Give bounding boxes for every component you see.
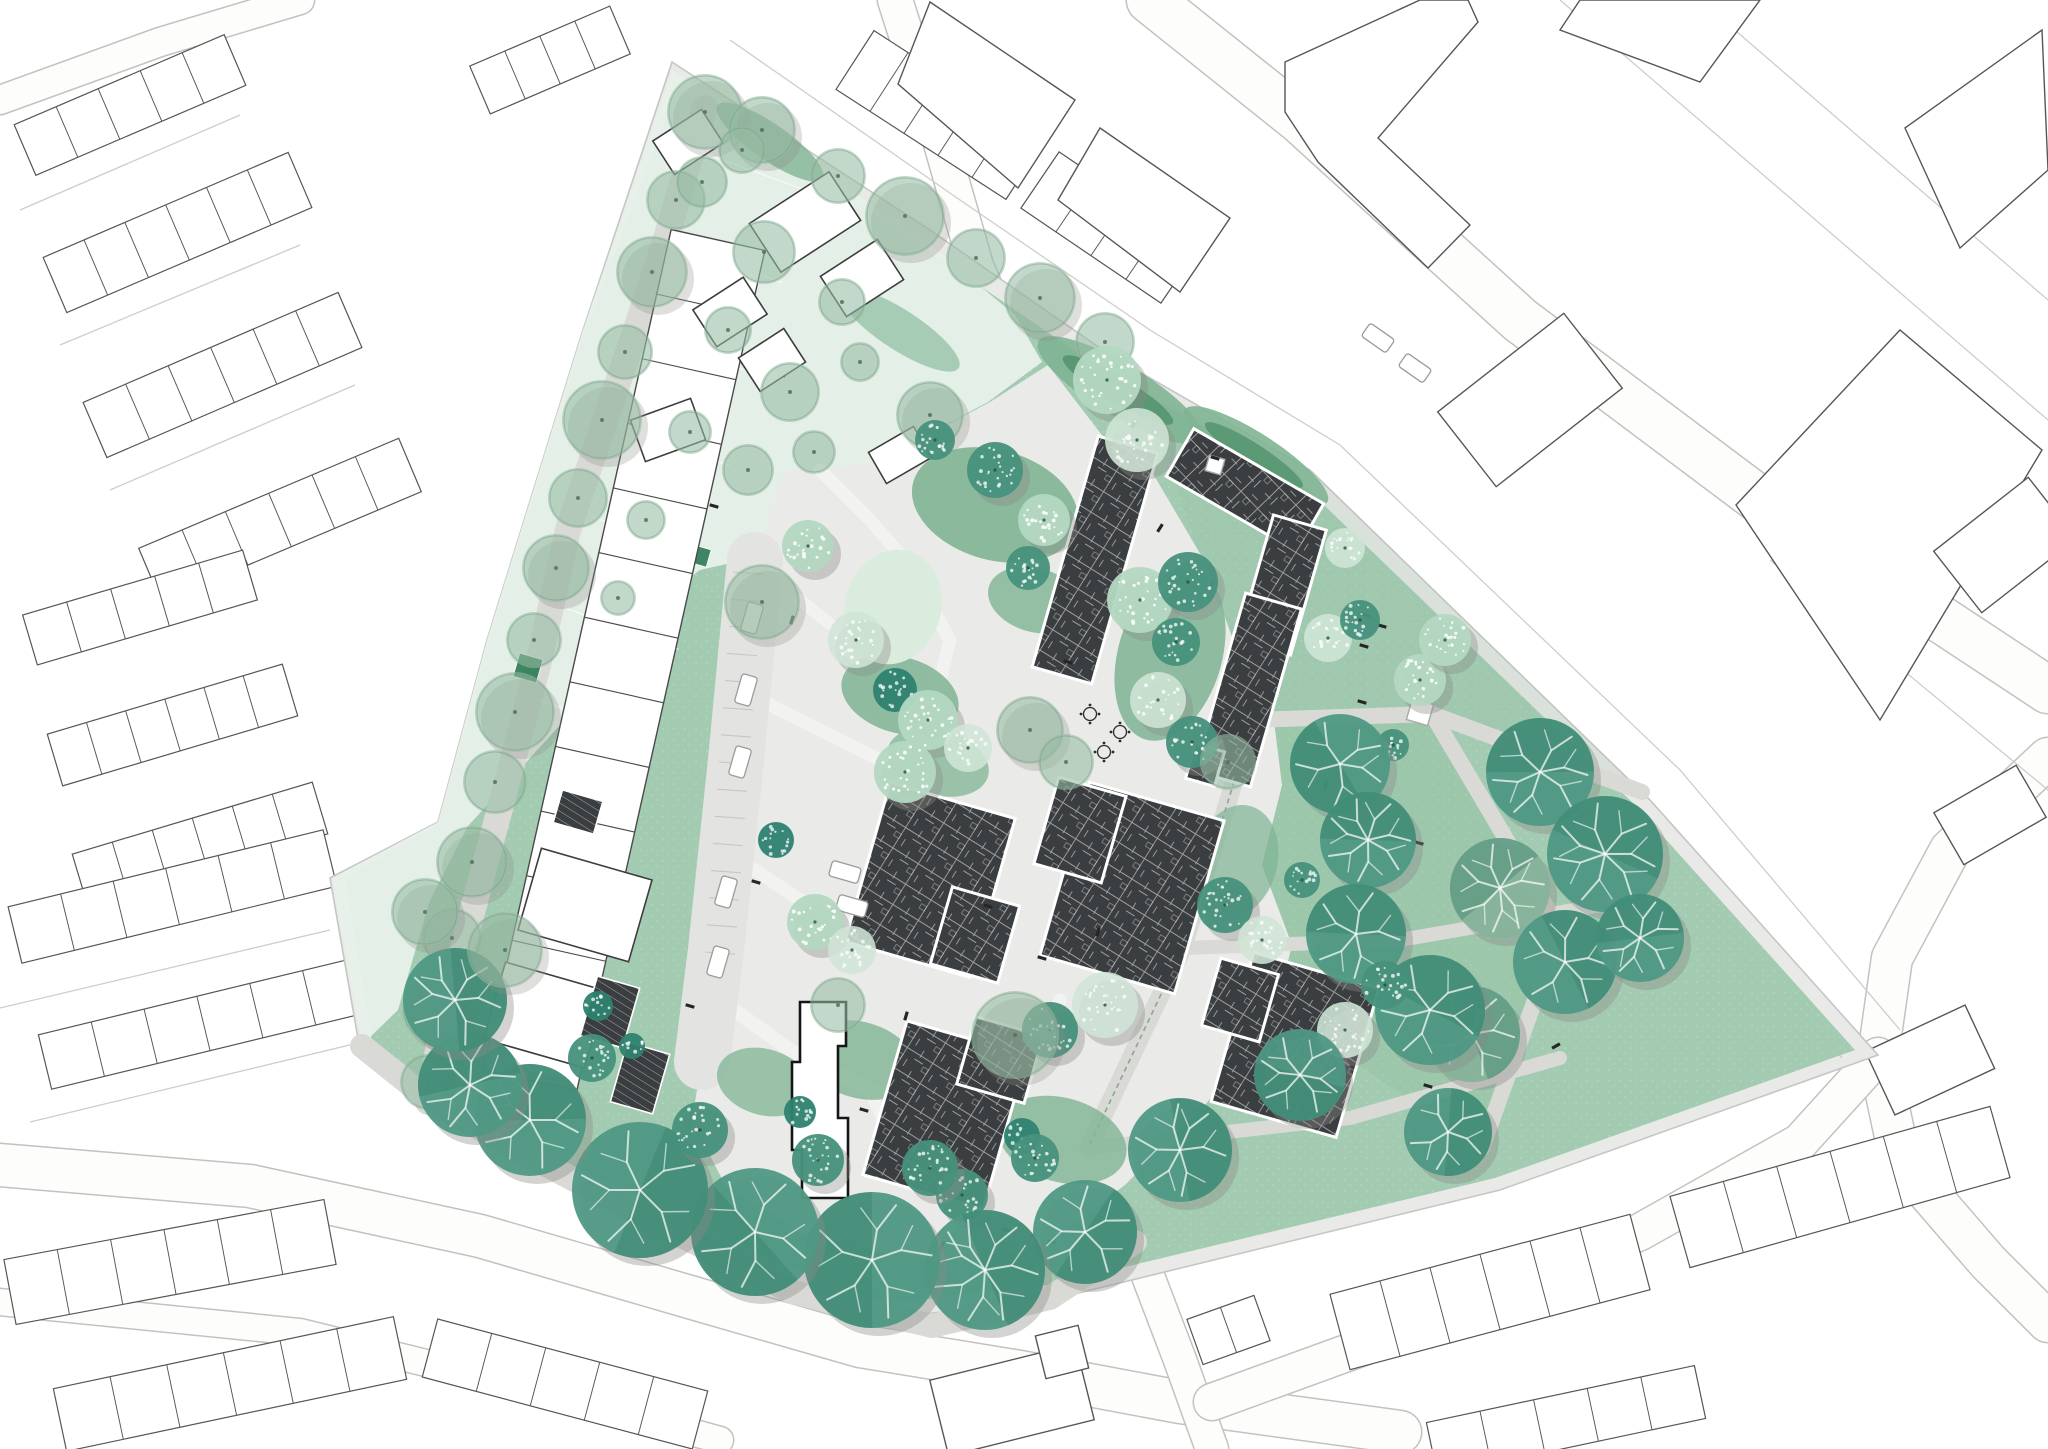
stipple-dot <box>801 532 804 535</box>
stipple-dot <box>914 1168 917 1171</box>
stipple-dot <box>1119 610 1121 612</box>
stipple-dot <box>1024 567 1026 569</box>
stipple-dot <box>1181 640 1185 644</box>
stipple-dot <box>889 704 891 706</box>
stipple-dot <box>812 1143 814 1145</box>
stipple-dot <box>1377 968 1380 971</box>
stipple-dot <box>762 839 764 841</box>
stipple-dot <box>823 939 826 942</box>
stipple-dot <box>810 544 814 548</box>
stipple-dot <box>1103 994 1106 997</box>
stipple-dot <box>912 736 914 738</box>
stipple-dot <box>1170 714 1173 717</box>
trunk-dot <box>816 1158 819 1161</box>
trunk-dot <box>740 148 744 152</box>
stipple-dot <box>1127 610 1129 612</box>
stipple-dot <box>1009 1126 1013 1130</box>
stipple-dot <box>980 455 983 458</box>
stipple-dot <box>1193 564 1196 567</box>
stipple-dot <box>1141 597 1145 601</box>
tree-stipDark <box>1011 1134 1059 1182</box>
stipple-dot <box>1351 621 1353 623</box>
stipple-dot <box>1116 450 1119 453</box>
tree-lace <box>1325 528 1365 568</box>
stipple-dot <box>850 655 854 659</box>
stipple-dot <box>769 825 773 829</box>
stipple-dot <box>1397 982 1400 985</box>
stipple-dot <box>1085 993 1087 995</box>
stipple-dot <box>909 745 912 748</box>
stipple-dot <box>1137 710 1140 713</box>
stipple-dot <box>1447 636 1450 639</box>
tree-sage <box>792 430 836 474</box>
stipple-dot <box>921 434 923 436</box>
stipple-dot <box>1289 885 1291 887</box>
trunk-dot <box>1343 1028 1346 1031</box>
branch <box>1501 755 1523 756</box>
stipple-dot <box>789 556 792 559</box>
stipple-dot <box>592 1009 595 1012</box>
stipple-dot <box>1412 674 1414 676</box>
stipple-dot <box>1127 364 1131 368</box>
stipple-dot <box>918 749 921 752</box>
trunk-dot <box>788 390 792 394</box>
stipple-dot <box>917 763 919 765</box>
stipple-dot <box>906 769 910 773</box>
stipple-dot <box>966 759 969 762</box>
stipple-dot <box>1018 557 1020 559</box>
picnic-seat <box>1098 713 1101 716</box>
stipple-dot <box>717 1124 720 1127</box>
stipple-dot <box>1096 1006 1099 1009</box>
tree-sage <box>676 156 728 208</box>
stipple-dot <box>1221 885 1224 888</box>
stipple-dot <box>1165 608 1167 610</box>
stipple-dot <box>1263 943 1267 947</box>
stipple-dot <box>1381 988 1384 991</box>
stipple-dot <box>1008 1133 1011 1136</box>
stipple-dot <box>1326 628 1328 630</box>
stipple-dot <box>903 785 906 788</box>
stipple-dot <box>900 688 902 690</box>
stipple-dot <box>1154 431 1157 434</box>
stipple-dot <box>787 554 789 556</box>
stipple-dot <box>1054 514 1058 518</box>
trunk-dot <box>532 638 536 642</box>
stipple-dot <box>1345 616 1348 619</box>
stipple-dot <box>944 1168 948 1172</box>
stipple-dot <box>910 720 913 723</box>
stipple-dot <box>1115 996 1117 998</box>
stipple-dot <box>1110 408 1112 410</box>
tree-lace <box>944 724 992 772</box>
stipple-dot <box>1162 625 1165 628</box>
trunk-dot <box>1383 983 1386 986</box>
tree-sage <box>1038 734 1094 790</box>
stipple-dot <box>1048 527 1051 530</box>
stipple-dot <box>602 1046 604 1048</box>
stipple-dot <box>824 1139 826 1141</box>
stipple-dot <box>821 925 824 928</box>
stipple-dot <box>1093 1028 1095 1030</box>
stipple-dot <box>811 1138 813 1140</box>
stipple-dot <box>1124 380 1128 384</box>
stipple-dot <box>998 462 1000 464</box>
stipple-dot <box>1173 584 1177 588</box>
trunk-dot <box>700 180 704 184</box>
stipple-dot <box>1201 571 1203 573</box>
tree-sage <box>818 278 866 326</box>
stipple-dot <box>1332 645 1336 649</box>
stipple-dot <box>896 752 899 755</box>
stipple-dot <box>626 1042 630 1046</box>
stipple-dot <box>802 1145 806 1149</box>
stipple-dot <box>1463 643 1465 645</box>
stipple-dot <box>858 955 861 958</box>
stipple-dot <box>702 1119 705 1122</box>
stipple-dot <box>1389 984 1392 987</box>
stipple-dot <box>964 738 966 740</box>
context-building <box>1905 30 2048 248</box>
stipple-dot <box>969 739 973 743</box>
tree-bush <box>583 991 613 1021</box>
stipple-dot <box>888 685 892 689</box>
stipple-dot <box>808 1179 811 1182</box>
picnic-seat <box>1128 731 1131 734</box>
trunk-dot <box>812 450 816 454</box>
stipple-dot <box>1413 679 1417 683</box>
stipple-dot <box>851 620 855 624</box>
stipple-dot <box>781 853 783 855</box>
stipple-dot <box>640 1048 642 1050</box>
stipple-dot <box>864 620 866 622</box>
trunk-dot <box>688 430 692 434</box>
stipple-dot <box>1297 869 1300 872</box>
trunk-dot <box>806 544 809 547</box>
stipple-dot <box>814 1177 816 1179</box>
trunk-dot <box>1358 618 1361 621</box>
stipple-dot <box>597 1064 599 1066</box>
stipple-dot <box>1131 611 1135 615</box>
stipple-dot <box>1146 620 1149 623</box>
stipple-dot <box>973 1208 975 1210</box>
stipple-dot <box>1162 690 1166 694</box>
stipple-dot <box>1429 667 1433 671</box>
stipple-dot <box>842 966 844 968</box>
stipple-dot <box>1444 651 1446 653</box>
stipple-dot <box>910 726 912 728</box>
stipple-dot <box>963 1187 965 1189</box>
stipple-dot <box>1023 514 1025 516</box>
trunk-dot <box>858 360 862 364</box>
stipple-dot <box>1144 683 1148 687</box>
stipple-dot <box>1138 696 1141 699</box>
trunk-dot <box>1223 903 1226 906</box>
stipple-dot <box>1203 743 1205 745</box>
stipple-dot <box>1360 1037 1364 1041</box>
stipple-dot <box>1177 587 1180 590</box>
stipple-dot <box>1312 626 1315 629</box>
stipple-dot <box>1092 354 1095 357</box>
stipple-dot <box>943 443 945 445</box>
stipple-dot <box>1010 482 1013 485</box>
stipple-dot <box>693 1145 696 1148</box>
stipple-dot <box>972 1197 976 1201</box>
stipple-dot <box>1329 640 1331 642</box>
stipple-dot <box>1012 455 1014 457</box>
stipple-dot <box>809 1174 813 1178</box>
stipple-dot <box>1405 688 1408 691</box>
stipple-dot <box>1267 948 1269 950</box>
stipple-dot <box>679 1118 682 1121</box>
stipple-dot <box>1418 666 1421 669</box>
stipple-dot <box>907 789 909 791</box>
stipple-dot <box>1133 584 1136 587</box>
stipple-dot <box>827 551 830 554</box>
stipple-dot <box>1052 1159 1055 1162</box>
stipple-dot <box>583 1060 585 1062</box>
stipple-dot <box>928 425 931 428</box>
stipple-dot <box>919 726 922 729</box>
trunk-dot <box>503 948 507 952</box>
stipple-dot <box>1066 1044 1069 1047</box>
stipple-dot <box>1352 1009 1354 1011</box>
stipple-dot <box>1361 613 1363 615</box>
stipple-dot <box>1334 1027 1338 1031</box>
stipple-dot <box>641 1041 643 1043</box>
stipple-dot <box>1116 455 1120 459</box>
stipple-dot <box>787 838 789 840</box>
trunk-dot <box>470 860 474 864</box>
stipple-dot <box>1146 612 1149 615</box>
stipple-dot <box>1316 622 1318 624</box>
stipple-dot <box>1175 637 1178 640</box>
stipple-dot <box>808 566 811 569</box>
stipple-dot <box>1335 627 1339 631</box>
stipple-dot <box>1184 726 1186 728</box>
stipple-dot <box>928 1157 931 1160</box>
stipple-dot <box>1188 631 1192 635</box>
stipple-dot <box>1068 1039 1072 1043</box>
stipple-dot <box>827 1163 830 1166</box>
stipple-dot <box>1166 569 1168 571</box>
stipple-dot <box>809 1116 811 1118</box>
stipple-dot <box>1053 511 1055 513</box>
stipple-dot <box>1397 973 1400 976</box>
stipple-dot <box>1093 988 1095 990</box>
trunk-dot <box>698 1128 701 1131</box>
stipple-dot <box>861 940 865 944</box>
trunk-dot <box>423 910 427 914</box>
stipple-dot <box>708 1132 711 1135</box>
stipple-dot <box>1451 621 1453 623</box>
stipple-dot <box>608 1006 611 1009</box>
stipple-dot <box>607 1056 610 1059</box>
stipple-dot <box>1417 693 1419 695</box>
stipple-dot <box>969 1180 972 1183</box>
stipple-dot <box>854 953 858 957</box>
stipple-dot <box>1137 582 1140 585</box>
stipple-dot <box>702 1106 705 1109</box>
stipple-dot <box>1248 932 1251 935</box>
stipple-dot <box>1203 910 1206 913</box>
stipple-dot <box>1119 1009 1121 1011</box>
stipple-dot <box>1438 639 1440 641</box>
stipple-dot <box>888 756 891 759</box>
stipple-dot <box>1410 659 1413 662</box>
stipple-dot <box>1264 931 1267 934</box>
stipple-dot <box>903 751 907 755</box>
stipple-dot <box>588 1066 592 1070</box>
stipple-dot <box>1122 581 1125 584</box>
stipple-dot <box>1154 598 1156 600</box>
stipple-dot <box>1120 459 1124 463</box>
trunk-dot <box>903 770 906 773</box>
stipple-dot <box>893 673 896 676</box>
stipple-dot <box>641 1043 644 1046</box>
stipple-dot <box>1206 897 1209 900</box>
stipple-dot <box>795 1106 798 1109</box>
trunk-dot <box>836 174 840 178</box>
stipple-dot <box>1113 1007 1115 1009</box>
stipple-dot <box>840 953 843 956</box>
stipple-dot <box>944 734 947 737</box>
stipple-dot <box>955 734 958 737</box>
stipple-dot <box>882 689 884 691</box>
stipple-dot <box>1361 625 1365 629</box>
stipple-dot <box>907 711 909 713</box>
tree-sage <box>946 228 1006 288</box>
stipple-dot <box>834 636 837 639</box>
stipple-dot <box>811 539 813 541</box>
stipple-dot <box>1333 538 1335 540</box>
stipple-dot <box>603 1012 606 1015</box>
stipple-dot <box>1348 537 1350 539</box>
stipple-dot <box>1191 744 1193 746</box>
stipple-dot <box>1399 739 1403 743</box>
stipple-dot <box>983 481 987 485</box>
stipple-dot <box>1268 931 1270 933</box>
stipple-dot <box>1367 606 1369 608</box>
stipple-dot <box>1330 542 1334 546</box>
stipple-dot <box>602 1059 605 1062</box>
stipple-dot <box>899 756 902 759</box>
stipple-dot <box>827 1155 829 1157</box>
stipple-dot <box>1377 984 1381 988</box>
stipple-dot <box>1355 1014 1358 1017</box>
stipple-dot <box>1110 979 1114 983</box>
stipple-dot <box>1031 567 1033 569</box>
stipple-dot <box>627 1046 630 1049</box>
stipple-dot <box>967 762 971 766</box>
stipple-dot <box>1212 892 1215 895</box>
stipple-dot <box>583 1054 587 1058</box>
stipple-dot <box>1462 650 1464 652</box>
stipple-dot <box>988 447 990 449</box>
stipple-dot <box>1219 915 1221 917</box>
stipple-dot <box>816 556 819 559</box>
trunk-dot <box>623 350 627 354</box>
stipple-dot <box>681 1139 684 1142</box>
stipple-dot <box>895 681 899 685</box>
stipple-dot <box>1100 392 1103 395</box>
stipple-dot <box>1010 569 1013 572</box>
stipple-dot <box>1128 423 1130 425</box>
stipple-dot <box>601 1004 603 1006</box>
stipple-dot <box>922 778 925 781</box>
stipple-dot <box>1122 400 1126 404</box>
stipple-dot <box>1344 626 1348 630</box>
tree-sage <box>718 126 766 174</box>
stipple-dot <box>1093 990 1095 992</box>
stipple-dot <box>1024 579 1027 582</box>
stipple-dot <box>902 676 905 679</box>
stipple-dot <box>925 785 928 788</box>
stipple-dot <box>769 837 771 839</box>
stipple-dot <box>920 1179 922 1181</box>
tree-bush <box>619 1033 645 1059</box>
stipple-dot <box>1148 437 1151 440</box>
stipple-dot <box>1293 871 1295 873</box>
tree-sage <box>548 468 608 528</box>
stipple-dot <box>1392 994 1394 996</box>
stipple-dot <box>914 714 918 718</box>
stipple-dot <box>1042 539 1046 543</box>
stipple-dot <box>979 483 982 486</box>
stipple-dot <box>1039 520 1042 523</box>
stipple-dot <box>927 1152 929 1154</box>
stipple-dot <box>1313 646 1315 648</box>
stipple-dot <box>898 690 901 693</box>
trunk-dot <box>1013 1033 1017 1037</box>
stipple-dot <box>1171 744 1173 746</box>
stipple-dot <box>836 1155 839 1158</box>
stipple-dot <box>1006 475 1008 477</box>
stipple-dot <box>1334 1035 1337 1038</box>
stipple-dot <box>940 723 944 727</box>
stipple-dot <box>578 1046 581 1049</box>
stipple-dot <box>845 951 849 955</box>
tree-sage <box>668 410 712 454</box>
stipple-dot <box>1394 990 1398 994</box>
stipple-dot <box>918 444 922 448</box>
stipple-dot <box>809 1155 811 1157</box>
stipple-dot <box>841 941 843 943</box>
stipple-dot <box>803 911 806 914</box>
stipple-dot <box>922 772 925 775</box>
stipple-dot <box>1167 644 1170 647</box>
stipple-dot <box>1030 559 1034 563</box>
stipple-dot <box>1227 893 1230 896</box>
stipple-dot <box>809 1111 812 1114</box>
stipple-dot <box>1044 526 1047 529</box>
branch <box>1624 871 1647 872</box>
stipple-dot <box>782 830 784 832</box>
context-building <box>1285 0 1478 268</box>
stipple-dot <box>796 553 798 555</box>
stipple-dot <box>907 1168 909 1170</box>
trunk-dot <box>1064 760 1068 764</box>
stipple-dot <box>1396 744 1399 747</box>
stipple-dot <box>1149 442 1152 445</box>
stipple-dot <box>1388 988 1390 990</box>
stipple-dot <box>1194 592 1197 595</box>
stipple-dot <box>1225 880 1227 882</box>
stipple-dot <box>1028 576 1032 580</box>
stipple-dot <box>812 1160 814 1162</box>
stipple-dot <box>1013 467 1015 469</box>
stipple-dot <box>1381 978 1384 981</box>
